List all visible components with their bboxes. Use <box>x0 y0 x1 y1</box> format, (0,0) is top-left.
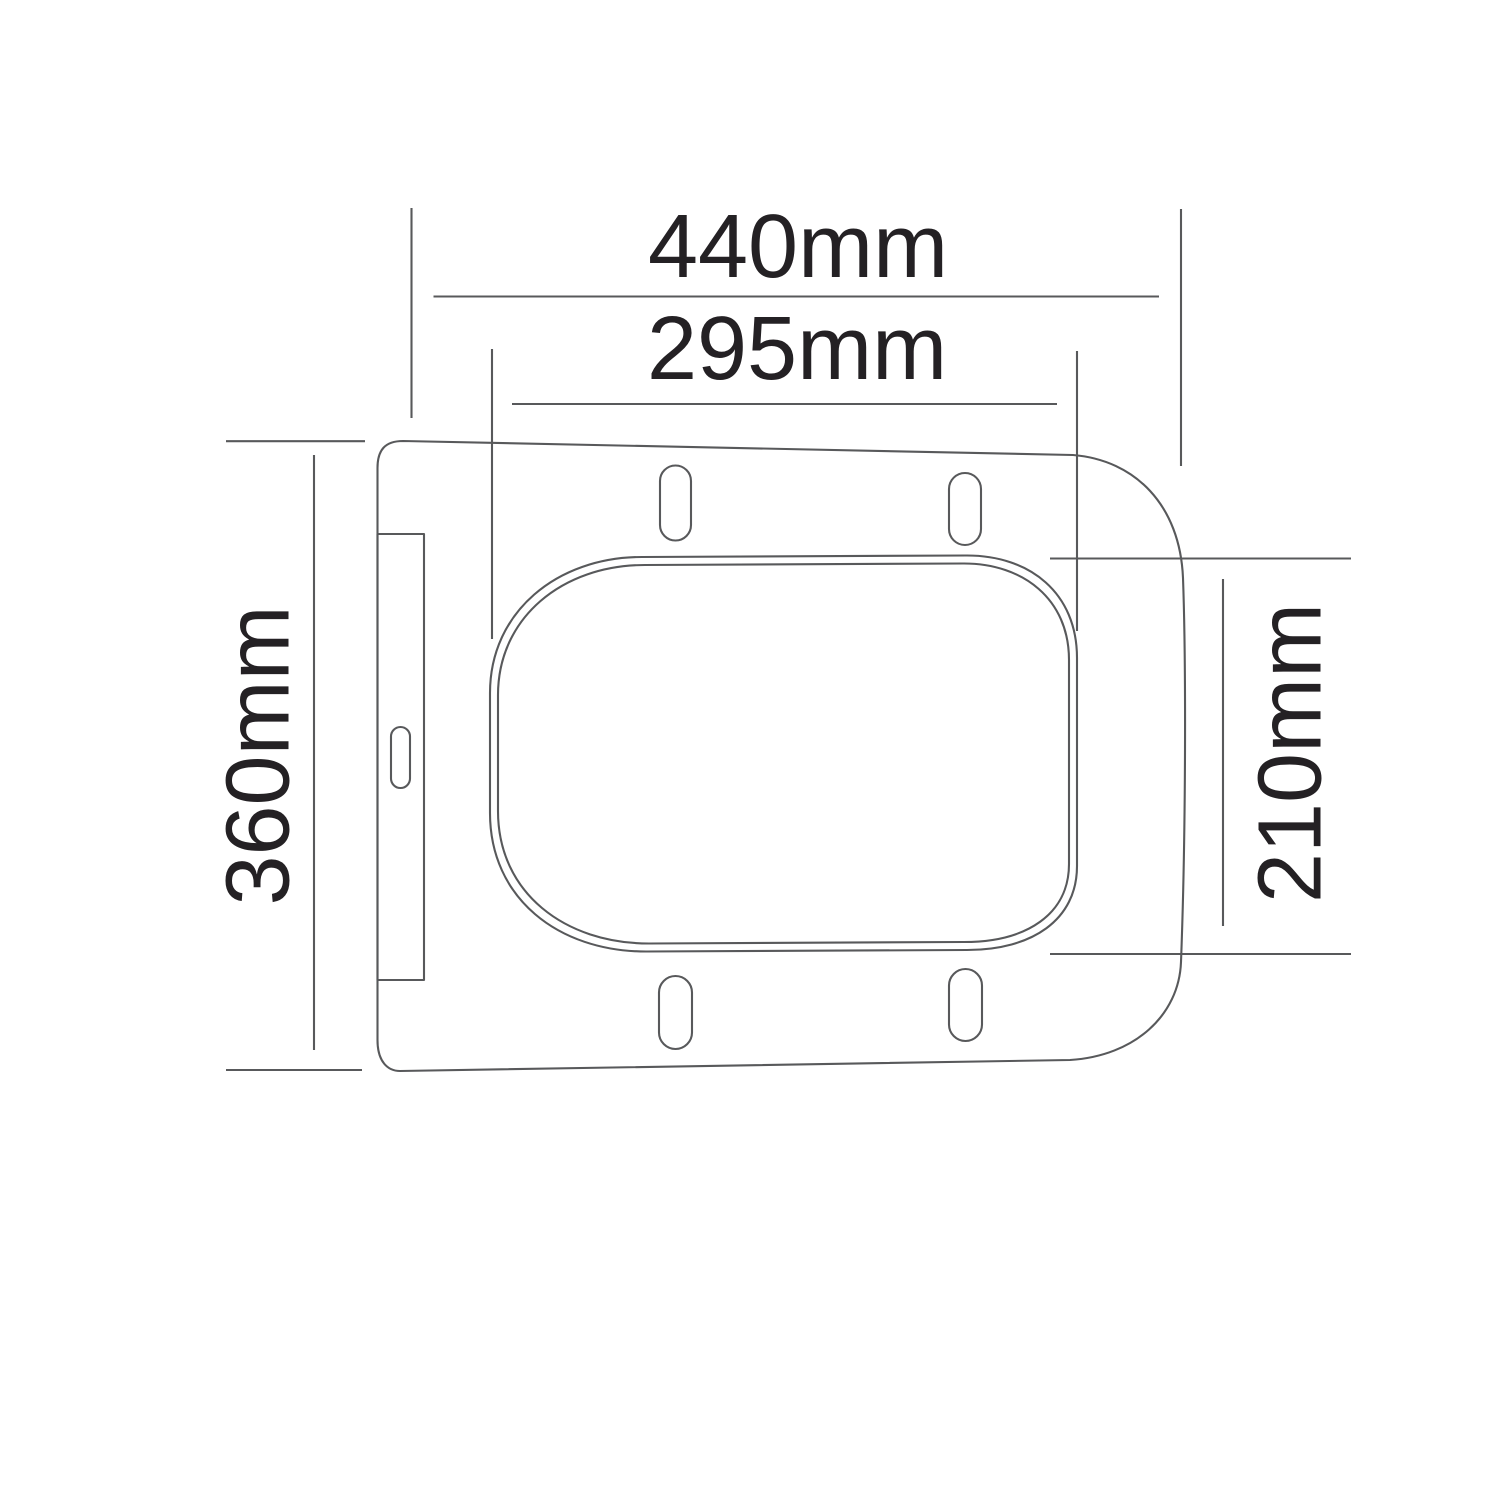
svg-text:360mm: 360mm <box>209 605 309 905</box>
svg-text:210mm: 210mm <box>1241 603 1341 903</box>
svg-text:295mm: 295mm <box>647 299 947 399</box>
svg-text:440mm: 440mm <box>648 197 948 297</box>
